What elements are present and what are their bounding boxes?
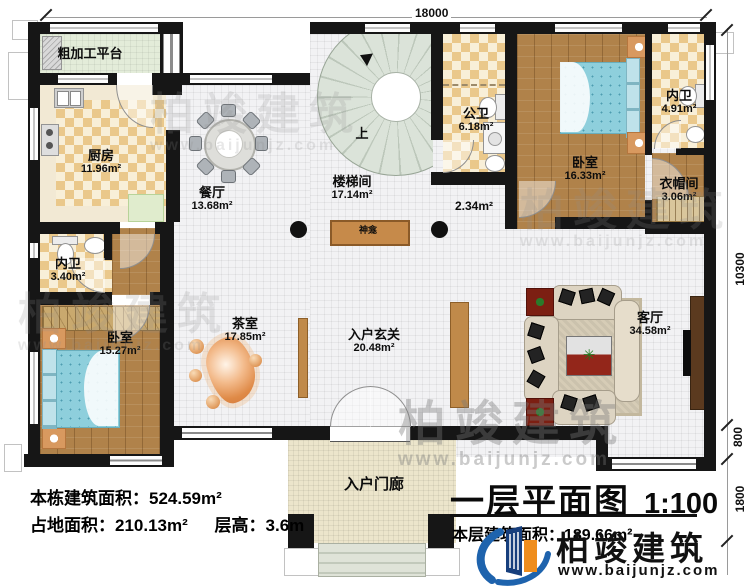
coffee-table: ✳ — [566, 336, 612, 376]
bed-left-blanket — [84, 350, 118, 426]
small-area-label: 2.34m² — [455, 199, 493, 213]
window — [190, 73, 272, 85]
wall — [28, 292, 112, 305]
wall — [104, 234, 112, 260]
wall — [622, 22, 668, 34]
window — [50, 22, 158, 34]
dimension-marker-box — [8, 52, 30, 100]
bed-left-headboard — [42, 349, 57, 429]
wall — [410, 426, 608, 440]
room-label-ensuite-top: 内卫4.91m² — [662, 88, 697, 116]
dimension-line-top — [45, 17, 707, 18]
wall — [272, 426, 330, 440]
dimension-tick — [700, 9, 713, 22]
column — [431, 221, 448, 238]
dining-chair — [189, 136, 202, 151]
brand-logo-icon — [476, 520, 552, 586]
tv-screen — [683, 330, 691, 376]
porch-steps — [318, 543, 426, 577]
wall — [24, 454, 110, 467]
wall — [162, 454, 174, 467]
column — [290, 221, 307, 238]
sofa-pillow — [579, 288, 596, 305]
burner — [46, 129, 53, 136]
wall — [505, 34, 517, 217]
coffee-table-plant: ✳ — [583, 347, 596, 364]
wall — [108, 73, 117, 85]
wall — [495, 22, 555, 34]
dimension-right-offset: 800 — [731, 411, 745, 463]
dining-chair — [221, 104, 236, 117]
room-label-cloakroom: 衣帽间3.06m² — [659, 176, 698, 204]
wall — [158, 22, 183, 34]
side-table-red — [526, 398, 554, 426]
title-underline — [450, 514, 697, 517]
building-area-text: 本栋建筑面积：524.59m² — [30, 484, 222, 509]
room-label-ensuite-left: 内卫3.40m² — [51, 256, 86, 284]
shrine-label: 神龛 — [359, 225, 377, 236]
room-label-bedroom-left: 卧室15.27m² — [100, 330, 141, 358]
room-label-rough-platform: 粗加工平台 — [57, 46, 122, 61]
window — [704, 45, 716, 100]
room-label-stairwell: 楼梯间17.14m² — [332, 174, 373, 202]
dimension-marker-box — [4, 444, 22, 472]
window — [58, 73, 108, 85]
room-label-living: 客厅34.58m² — [630, 310, 671, 338]
window — [612, 457, 696, 471]
brand-logo — [476, 520, 552, 588]
wall — [28, 258, 40, 352]
nightstand — [42, 328, 66, 349]
window — [668, 22, 700, 34]
wall — [431, 34, 443, 140]
footprint-text: 占地面积：210.13m² 层高：3.6m — [30, 511, 304, 536]
brand-url: www.baijunjz.com — [558, 562, 719, 579]
wall — [28, 22, 40, 108]
kitchen-stove — [41, 124, 59, 156]
window — [365, 22, 410, 34]
wall — [310, 22, 365, 34]
bath-sink — [485, 155, 505, 172]
dining-chair — [221, 170, 236, 183]
kitchen-sink — [54, 88, 84, 108]
burner — [46, 142, 53, 149]
dimension-top: 18000 — [412, 6, 451, 20]
floor-plan-canvas: ✳ — [0, 0, 750, 588]
wall — [704, 100, 716, 471]
wall — [152, 73, 182, 95]
room-label-bedroom-top: 卧室16.33m² — [565, 155, 606, 183]
wall — [645, 34, 652, 155]
room-label-kitchen: 厨房11.96m² — [81, 148, 121, 176]
porch-column-base — [284, 548, 320, 576]
wall — [555, 217, 645, 229]
window — [28, 243, 40, 258]
dimension-line-right — [727, 28, 728, 575]
window — [110, 454, 162, 467]
wall — [160, 426, 182, 440]
room-label-dining: 餐厅13.68m² — [192, 185, 233, 213]
stair-center — [371, 72, 421, 122]
wall — [166, 130, 180, 222]
dimension-right-porch: 1800 — [733, 473, 747, 525]
room-label-public-bath: 公卫6.18m² — [459, 106, 494, 134]
sink-bowl — [70, 91, 81, 106]
side-table-red — [526, 288, 554, 316]
wall — [272, 73, 310, 85]
dimension-tick — [40, 9, 53, 22]
tea-ball — [189, 339, 204, 354]
dining-table-top — [215, 130, 243, 158]
window — [160, 34, 183, 73]
door-threshold — [330, 426, 410, 442]
window — [460, 22, 495, 34]
room-label-entry-hall: 入户玄关20.48m² — [348, 327, 400, 355]
porch-column-base — [424, 548, 460, 576]
window — [182, 426, 272, 440]
window — [28, 352, 40, 424]
wall — [150, 292, 174, 305]
screen-panel-right — [450, 302, 469, 408]
stair-up-label: 上 — [355, 126, 368, 141]
screen-panel-left — [298, 318, 308, 398]
footprint-area: 占地面积：210.13m² — [30, 516, 188, 535]
wall — [596, 457, 612, 471]
sink-bowl — [57, 91, 69, 106]
wall — [28, 222, 120, 234]
bed-top-headboard — [626, 58, 640, 138]
bath-divider — [443, 84, 505, 86]
tea-ball — [189, 369, 202, 382]
dining-chair — [255, 136, 268, 151]
room-label-porch: 入户门廊 — [344, 476, 404, 494]
tea-ball — [249, 354, 262, 367]
tea-ball — [206, 395, 220, 409]
kitchen-mat — [128, 194, 164, 222]
floor-height: 层高：3.6m — [215, 516, 305, 535]
bath-sink — [686, 126, 705, 143]
wall — [645, 200, 652, 222]
wall — [704, 22, 716, 45]
wall — [505, 217, 517, 229]
wall — [696, 457, 716, 471]
window — [555, 22, 622, 34]
bath-sink — [84, 237, 106, 254]
dimension-right-total: 10300 — [733, 236, 747, 302]
nightstand — [42, 428, 66, 449]
wall — [410, 22, 460, 34]
window — [28, 108, 40, 160]
room-label-tea-room: 茶室17.85m² — [225, 316, 266, 344]
